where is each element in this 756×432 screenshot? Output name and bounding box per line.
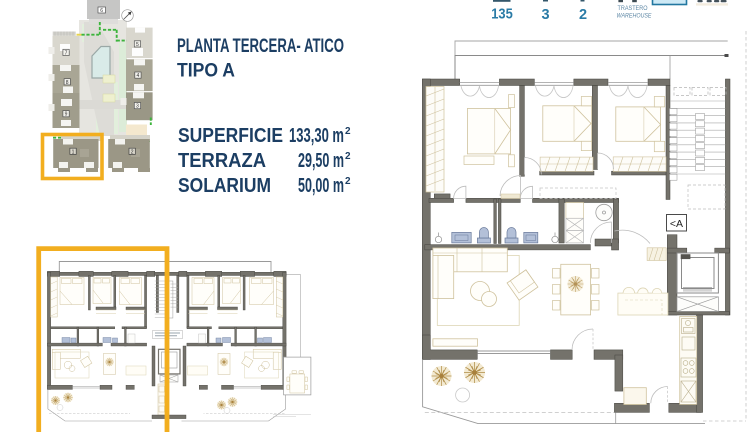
svg-text:6: 6	[100, 8, 103, 14]
svg-text:7: 7	[65, 50, 68, 56]
svg-text:WAREHOUSE: WAREHOUSE	[617, 13, 653, 20]
svg-text:2: 2	[345, 126, 351, 137]
svg-text:133,30 m: 133,30 m	[289, 125, 344, 147]
svg-text:50,00 m: 50,00 m	[298, 175, 344, 197]
svg-text:9: 9	[65, 112, 68, 118]
svg-text:29,50 m: 29,50 m	[298, 150, 344, 172]
svg-text:1: 1	[72, 149, 75, 155]
svg-text:135: 135	[491, 7, 513, 23]
svg-text:5: 5	[136, 42, 139, 48]
svg-text:TIPO A: TIPO A	[177, 61, 235, 82]
svg-text:TRASTERO: TRASTERO	[618, 5, 648, 12]
svg-text:3: 3	[541, 7, 549, 23]
svg-text:SOLARIUM: SOLARIUM	[178, 175, 271, 197]
svg-text:TERRAZA: TERRAZA	[178, 150, 266, 172]
svg-text:2: 2	[131, 149, 134, 155]
svg-text:<A: <A	[670, 218, 683, 230]
svg-text:8: 8	[66, 80, 69, 86]
svg-text:2: 2	[579, 7, 587, 23]
svg-text:4: 4	[137, 73, 140, 79]
svg-text:2: 2	[345, 151, 351, 162]
svg-text:3: 3	[136, 104, 139, 110]
svg-text:PLANTA TERCERA- ATICO: PLANTA TERCERA- ATICO	[177, 36, 344, 57]
svg-text:SUPERFICIE: SUPERFICIE	[178, 125, 283, 147]
svg-text:2: 2	[345, 176, 351, 187]
